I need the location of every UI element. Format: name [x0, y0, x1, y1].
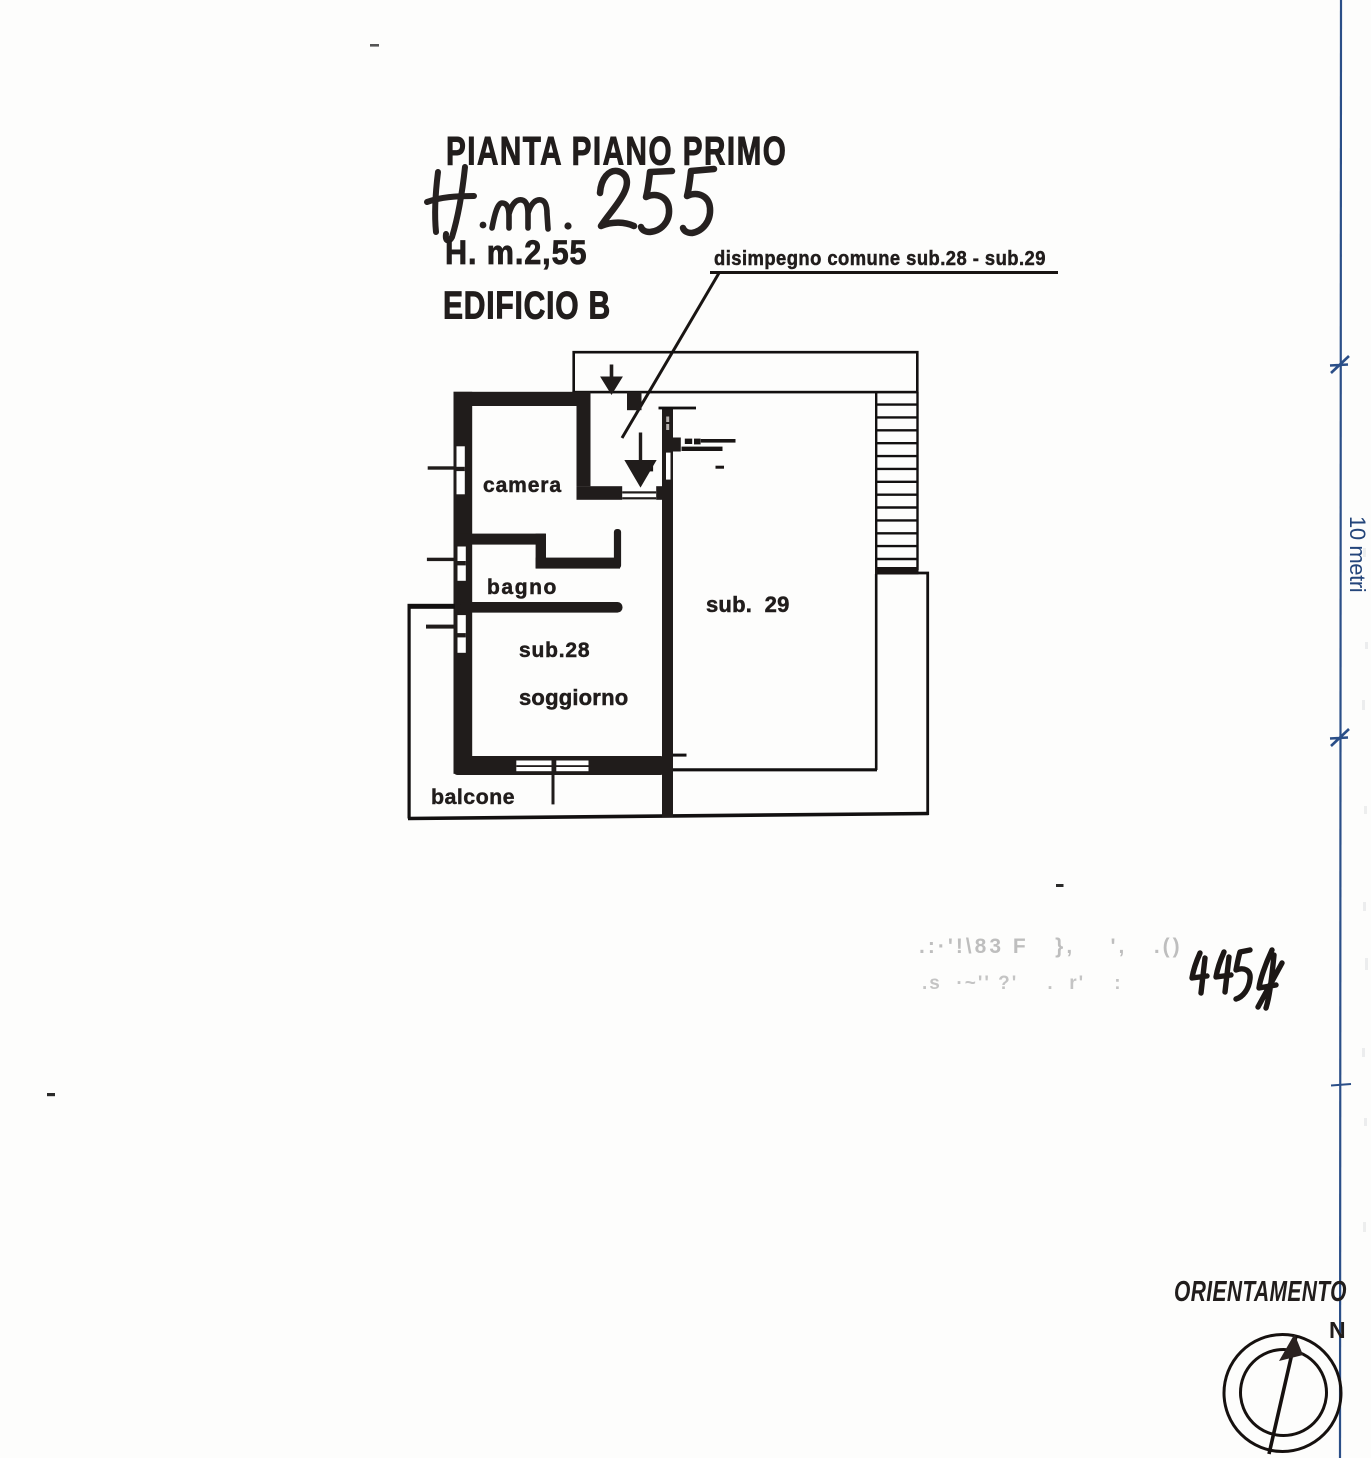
svg-text:.:·'!\83 F }, ', .(): .:·'!\83 F }, ', .()	[919, 935, 1183, 958]
svg-text:sub.28: sub.28	[519, 639, 590, 662]
svg-text:balcone: balcone	[431, 785, 515, 809]
svg-text:camera: camera	[483, 474, 562, 497]
svg-text:H. m.2,55: H. m.2,55	[445, 234, 587, 272]
svg-text:.s ·~'' ?' . r' :: .s ·~'' ?' . r' :	[922, 973, 1123, 994]
svg-text:EDIFICIO B: EDIFICIO B	[443, 285, 611, 327]
svg-text:PIANTA PIANO PRIMO: PIANTA PIANO PRIMO	[446, 129, 787, 173]
svg-text:soggiorno: soggiorno	[519, 685, 628, 710]
svg-text:ORIENTAMENTO: ORIENTAMENTO	[1174, 1276, 1347, 1308]
svg-text:N: N	[1329, 1317, 1346, 1343]
svg-text:sub. 29: sub. 29	[706, 592, 790, 617]
svg-text:bagno: bagno	[487, 576, 558, 599]
svg-text:disimpegno comune sub.28 - sub: disimpegno comune sub.28 - sub.29	[714, 248, 1046, 270]
svg-text:10 metri: 10 metri	[1345, 516, 1370, 592]
